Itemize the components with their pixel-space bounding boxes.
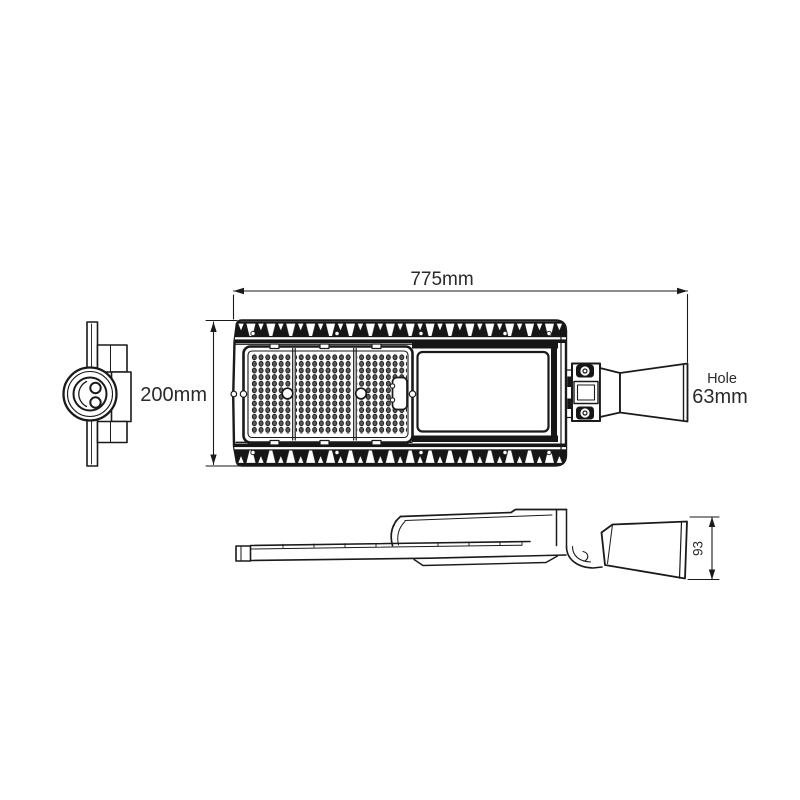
dimension-arm-height-label: 93 (691, 541, 706, 556)
driver-frame-top-bar (412, 342, 558, 349)
bracket-bolt-bottom-washer (580, 408, 589, 417)
dimension-arm-height-93: 93 (688, 517, 719, 580)
panel-screw-hole-right (356, 388, 367, 399)
body-nose-notch (231, 391, 237, 397)
side-spigot-block (602, 522, 688, 579)
arrowhead-left (234, 288, 245, 294)
driver-frame-bottom-bar (412, 436, 558, 443)
housing-rise-lip (394, 517, 401, 527)
led-panel (231, 344, 416, 445)
mounting-bracket (567, 364, 688, 422)
arrowhead-right (677, 288, 688, 294)
side-view-luminaire (236, 510, 687, 579)
arrowhead-bottom (210, 455, 216, 465)
driver-cover-plate (418, 352, 549, 432)
top-view-luminaire (231, 321, 688, 466)
blade-top-edge (251, 542, 531, 546)
panel-edge-notch-left (240, 391, 246, 397)
street-light-dimension-drawing: 775mm 200mm Hole 63mm 93 (0, 0, 800, 800)
blade-end-cap (236, 546, 251, 561)
arrowhead-top (210, 322, 216, 332)
cable-hole-bottom (90, 397, 100, 407)
slot-notch-bottom (390, 398, 394, 402)
bracket-bolt-top-washer (580, 366, 589, 375)
spigot-outer-ring (64, 368, 117, 421)
panel-slot-cutout (393, 378, 408, 410)
spigot-tube (620, 364, 688, 422)
spigot-cone (600, 368, 620, 417)
panel-screw-hole-left (282, 388, 293, 399)
hinge-hook-detail (583, 552, 588, 561)
heatsink-fin-band-bottom (234, 444, 566, 465)
dimension-length-label: 775mm (410, 269, 473, 290)
led-array-section-2 (296, 354, 352, 435)
heatsink-fin-band-top (234, 322, 566, 343)
dimension-height-label: 200mm (140, 384, 207, 406)
arrowhead-top (709, 517, 715, 527)
hole-size-text: 63mm (692, 386, 748, 408)
arrowhead-bottom (709, 570, 715, 580)
housing-rise-inner (398, 522, 405, 546)
cable-hole-top (90, 383, 100, 393)
panel-edge-notch-right (409, 391, 415, 397)
dimension-height-200: 200mm (140, 321, 242, 467)
hole-label-text: Hole (707, 371, 737, 387)
blade-bottom-edge (251, 555, 567, 561)
end-view-block-upper (98, 345, 128, 372)
end-view-block-lower (98, 422, 128, 443)
hole-size-label: Hole 63mm (692, 371, 748, 408)
driver-frame-right-bar (551, 349, 557, 436)
hinge-arc-outer (567, 547, 603, 569)
slot-notch-top (390, 384, 394, 388)
technical-drawing-page: 775mm 200mm Hole 63mm 93 (0, 0, 800, 800)
blade-top-inner-edge (251, 545, 523, 549)
end-view-luminaire (64, 322, 132, 466)
